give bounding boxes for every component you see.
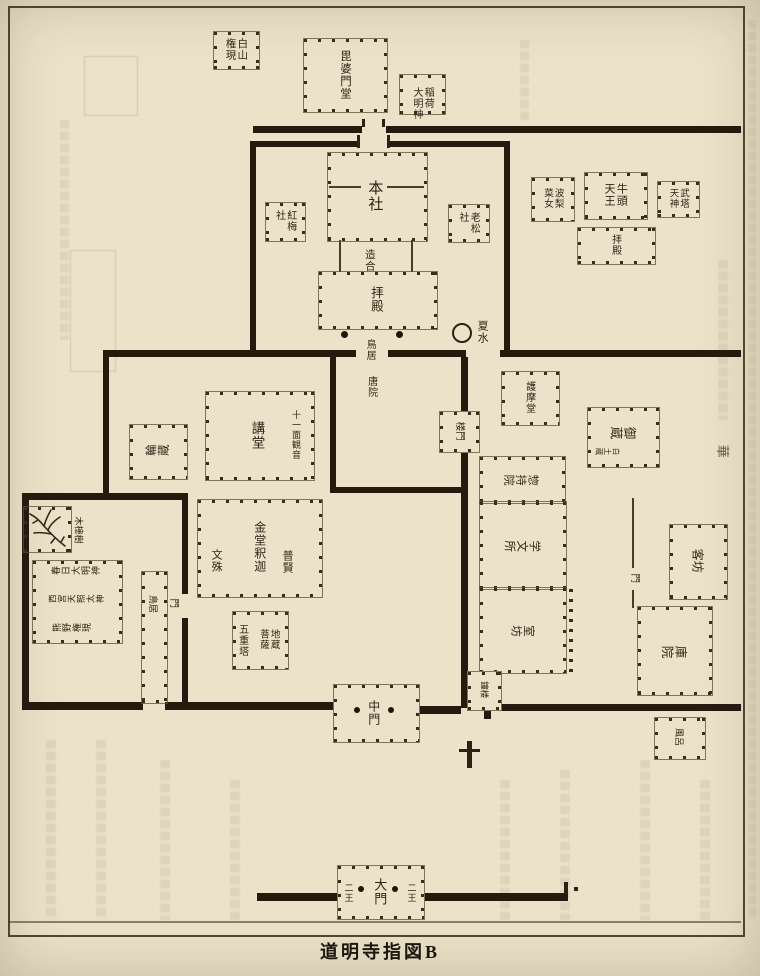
label-haiden-main: 拝殿 [364, 276, 388, 323]
label-mon-east: 門 [625, 566, 643, 590]
label-monju: 文殊 [208, 541, 224, 581]
torii-mark [467, 741, 472, 768]
torii-mark [459, 749, 480, 752]
label-sojiin: 惣持院 [481, 458, 562, 500]
label-shoro: 鐘楼 [469, 673, 498, 707]
margin-bleed-kanji: 華 [710, 438, 734, 464]
natsumizu-well-circle [452, 323, 472, 343]
label-gozu-tenno: 牛頭 天王 [586, 174, 644, 216]
toin-south-wall [330, 487, 466, 493]
mokugenju-tree-drawing [24, 507, 69, 550]
label-okura-note: 白土蔵 [590, 444, 624, 458]
shrine-north-wall [253, 141, 358, 147]
west-inner-wall [182, 500, 188, 594]
gate-post [362, 119, 365, 127]
daimon-pillar-dot [358, 886, 364, 892]
label-kodo: 講堂 [245, 402, 269, 468]
daimon-west-wall [257, 893, 338, 901]
label-rinzo: 輪蔵 [131, 426, 184, 476]
label-jizo-bosatsu: 地蔵 菩薩 [252, 614, 284, 665]
label-mokugenju: 木槵樹 [70, 504, 86, 556]
label-nio-right: 二王 [405, 878, 418, 908]
label-daimon: 大門 [368, 868, 390, 915]
west-cross-wall [22, 493, 188, 500]
outer-north-wall [253, 126, 362, 133]
label-inari-daimyojin: 稲荷 大明神 [401, 77, 443, 129]
label-murobo: 室坊 [481, 589, 563, 670]
chumon-pillar-dot [354, 707, 360, 713]
south-wall [417, 706, 461, 714]
label-nio-left: 二王 [342, 878, 355, 908]
label-furo: 風呂 [656, 719, 702, 756]
label-mon-west: 門 [165, 591, 181, 615]
shrine-east-wall [504, 141, 510, 357]
label-toin: 唐院 [363, 371, 379, 402]
middle-wall [103, 350, 356, 357]
murobo-east-hatch [569, 589, 573, 679]
south-east-wall [500, 704, 741, 711]
label-okura: 御蔵 [600, 418, 645, 444]
east-precinct-wall [461, 357, 468, 412]
label-nishinomiya: 西宮天照太神 [34, 591, 119, 607]
label-kyakubo: 客坊 [671, 526, 724, 596]
figure-caption: 道明寺指図B [0, 938, 760, 964]
label-kasuga: 春日大明神 [36, 563, 117, 579]
label-kuin: 庫院 [639, 608, 709, 692]
label-torii-west: 鳥居 [143, 587, 164, 621]
label-muto-tenjin: 武塔 天神 [659, 183, 696, 214]
gate-post [382, 119, 385, 127]
middle-wall [500, 350, 741, 357]
bleed-column [748, 20, 756, 920]
label-bishamondo: 毘婆門堂 [303, 41, 386, 108]
label-kondo-shaka: 金堂釈迦 [249, 505, 269, 589]
label-romon: 楼門 [441, 413, 476, 449]
label-fugen: 普賢 [279, 543, 295, 581]
domyoji-plan-page: 白山 権現 毘婆門堂 稲荷 大明神 本社 紅梅 社 老松 社 造合 拝殿 鳥居 … [0, 0, 760, 976]
daimon-pillar-dot [392, 886, 398, 892]
chumon-pillar-dot [388, 707, 394, 713]
label-torii-main: 鳥居 [362, 333, 377, 366]
gate-post [387, 135, 390, 148]
corridor-line [339, 240, 341, 272]
label-chumon: 中門 [362, 690, 384, 735]
label-gakumonjo: 学文所 [481, 503, 563, 586]
east-fence [632, 590, 634, 608]
shrine-north-wall [390, 141, 506, 147]
wall-end-dot [574, 887, 578, 891]
label-gomado: 護摩堂 [520, 374, 538, 421]
label-kumano: 熊野権現 [38, 620, 106, 636]
label-honsha: 本社 [361, 165, 387, 227]
south-wall [165, 702, 333, 710]
building-mokugenju-fence [23, 506, 72, 553]
label-haiden-gozu: 拝殿 [605, 229, 625, 261]
lantern-dot [341, 331, 348, 338]
shrine-west-wall [250, 141, 256, 357]
label-pagoda: 五重塔 [234, 615, 250, 665]
baseline-rule [8, 921, 741, 923]
label-harisainyo: 波梨 菜女 [533, 179, 571, 218]
label-hakusan-gongen: 白山 権現 [215, 33, 256, 66]
west-upper-wall [103, 357, 109, 497]
middle-wall [388, 350, 466, 357]
label-natsumizu: 夏水 [474, 312, 490, 352]
gate-post [357, 135, 360, 148]
wall-end-post [564, 882, 568, 894]
south-wall [22, 702, 143, 710]
label-kannon: 十一面観音 [289, 398, 303, 472]
corridor-line [411, 240, 413, 272]
daimon-east-wall [422, 893, 568, 901]
lantern-dot [396, 331, 403, 338]
toin-east-wall [330, 357, 336, 490]
west-inner-wall [182, 618, 188, 706]
label-oimatsu-sha: 老松 社 [450, 206, 486, 239]
page-frame [8, 6, 745, 937]
east-fence [632, 498, 634, 568]
label-kobai-sha: 紅梅 社 [267, 204, 302, 238]
